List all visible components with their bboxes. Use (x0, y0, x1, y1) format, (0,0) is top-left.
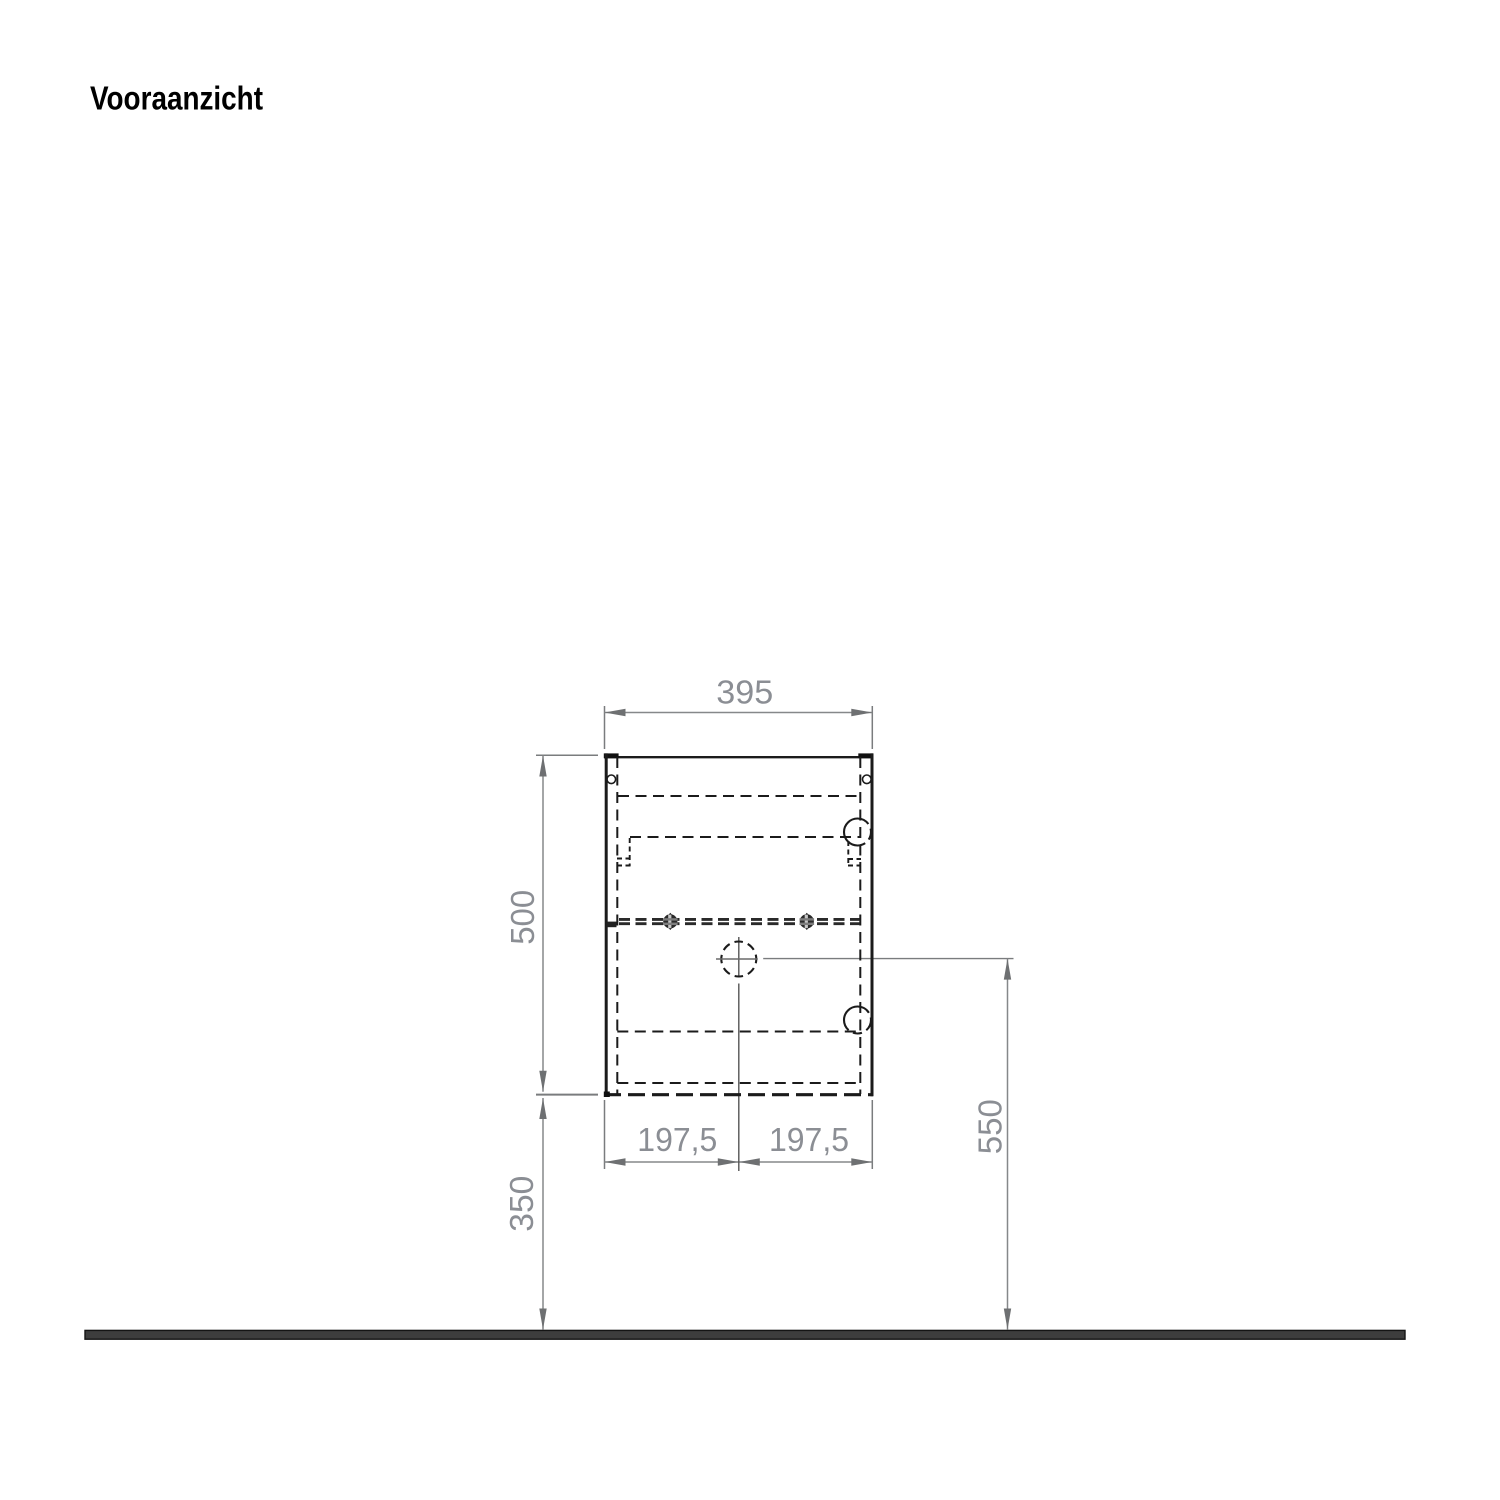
svg-text:500: 500 (504, 890, 541, 945)
svg-text:197,5: 197,5 (637, 1121, 717, 1158)
svg-text:350: 350 (503, 1176, 540, 1232)
svg-text:395: 395 (716, 674, 773, 711)
svg-text:197,5: 197,5 (769, 1121, 849, 1158)
svg-text:Vooraanzicht: Vooraanzicht (90, 80, 263, 117)
svg-text:550: 550 (972, 1099, 1009, 1154)
